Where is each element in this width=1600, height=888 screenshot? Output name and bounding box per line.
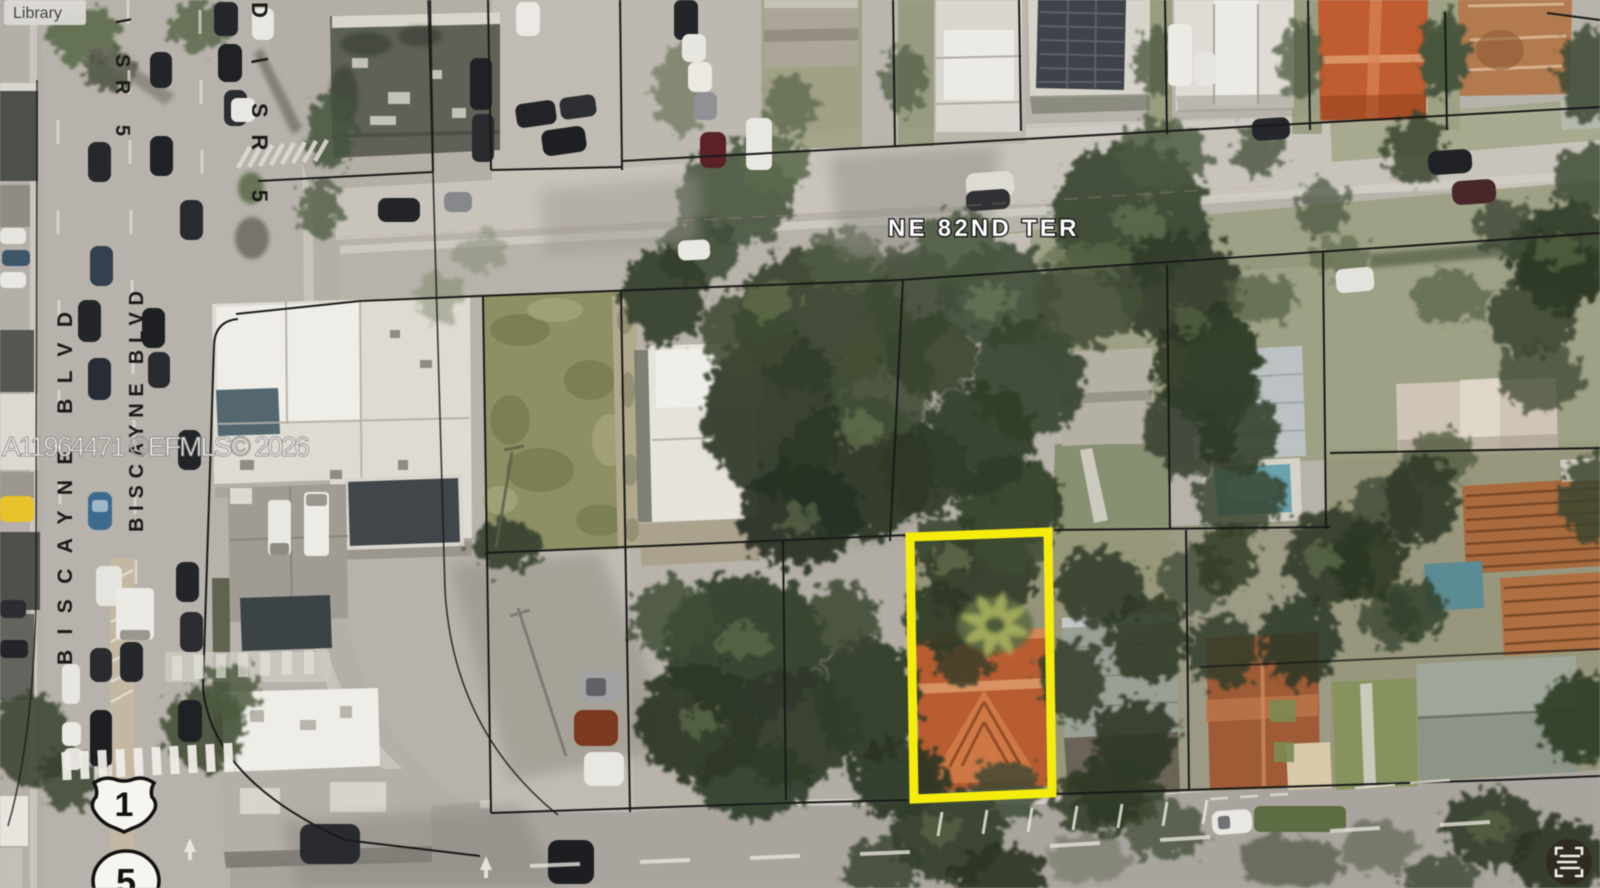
svg-text:NE 82ND TER: NE 82ND TER bbox=[888, 215, 1081, 242]
svg-text:A11964471 ©EFMLS© 2026: A11964471 ©EFMLS© 2026 bbox=[2, 431, 310, 462]
svg-text:5: 5 bbox=[116, 861, 136, 888]
svg-text:1: 1 bbox=[115, 786, 134, 824]
svg-text:Library: Library bbox=[13, 5, 62, 22]
svg-text:BISCAYNE BLVD: BISCAYNE BLVD bbox=[126, 287, 148, 532]
